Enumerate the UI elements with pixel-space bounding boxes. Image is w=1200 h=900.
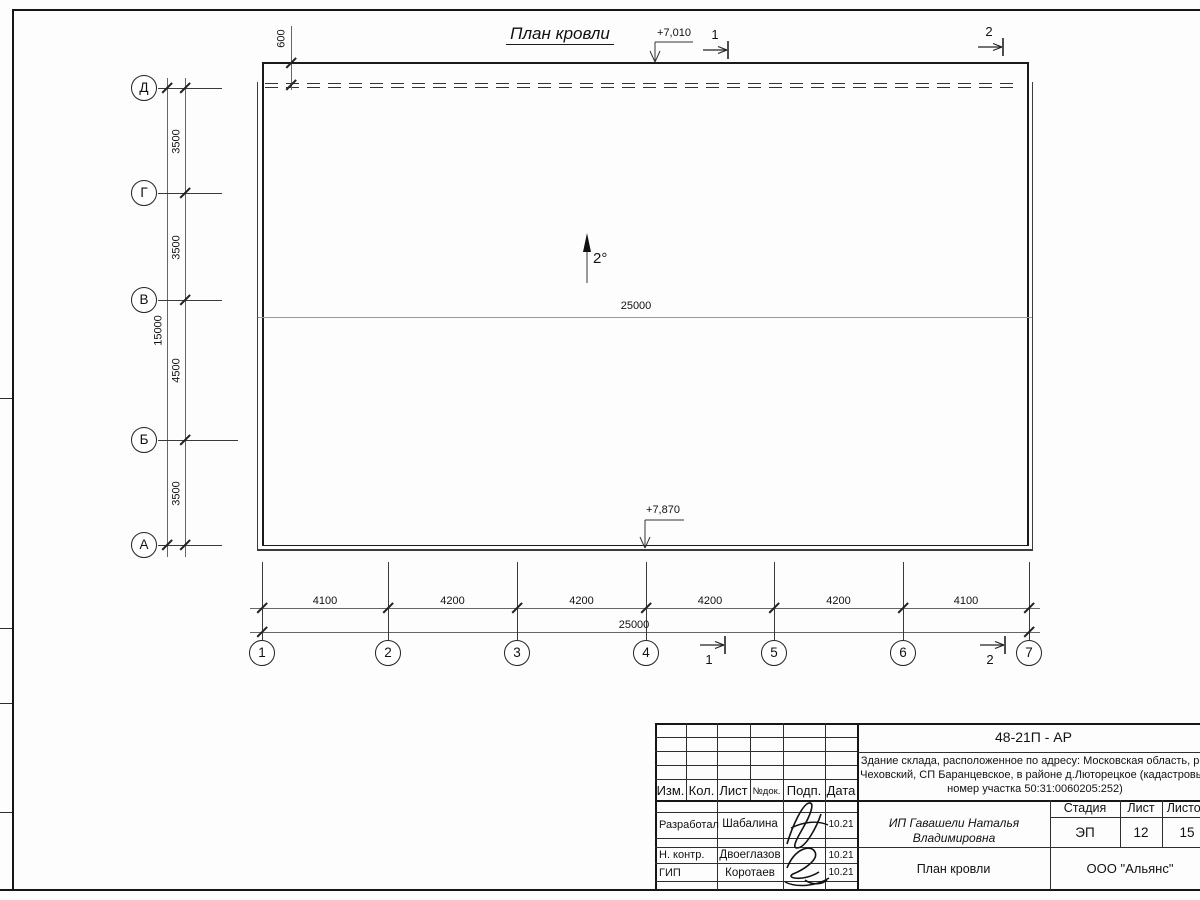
roof-inner-right xyxy=(1027,62,1029,546)
axis-bubble-7: 7 xyxy=(1016,640,1042,666)
signer-role: Разработал xyxy=(659,818,717,832)
frame-top-line xyxy=(12,9,1200,11)
elevation-bottom-label: +7,870 xyxy=(642,504,684,517)
rev-header-list: Лист xyxy=(717,782,750,799)
axis-bubble-3: 3 xyxy=(504,640,530,666)
dim-label-vertical: 3500 xyxy=(171,471,184,515)
sheet-number: 12 xyxy=(1120,824,1162,841)
elevation-leader-bottom-icon xyxy=(635,516,690,552)
dim-line-left-segments xyxy=(185,78,186,557)
axis-bubble-1: 1 xyxy=(249,640,275,666)
stage-value: ЭП xyxy=(1050,824,1120,841)
dim-label-horizontal: 4200 xyxy=(557,595,607,608)
axis-line-Б xyxy=(158,440,238,441)
axis-line-6 xyxy=(903,562,904,640)
dim-label-horizontal: 4100 xyxy=(941,595,991,608)
titleblock-line xyxy=(717,723,718,890)
roof-inner-left xyxy=(262,62,264,546)
signer-name: Шабалина xyxy=(717,817,783,832)
rev-header-ndok: №док. xyxy=(750,785,783,798)
dim-label-vertical: 3500 xyxy=(171,119,184,163)
dim-label-horizontal: 4200 xyxy=(814,595,864,608)
axis-bubble-Д: Д xyxy=(131,75,157,101)
dim-label-vertical: 3500 xyxy=(171,225,184,269)
titleblock-line xyxy=(655,751,857,752)
section-1-arrow-top-icon xyxy=(701,36,737,62)
client-name: ИП Гавашели Наталья Владимировна xyxy=(860,816,1048,846)
dim-label-horizontal: 4200 xyxy=(428,595,478,608)
dim-label-horizontal-total: 25000 xyxy=(609,619,659,632)
signer-role: ГИП xyxy=(659,866,717,880)
frame-bottom-line xyxy=(0,889,1200,891)
object-description-line2: Чеховский, СП Баранцевское, в районе д.Л… xyxy=(840,768,1200,782)
hidden-wall-line-1 xyxy=(265,83,1021,84)
titleblock-line xyxy=(655,765,857,766)
axis-bubble-А: А xyxy=(131,532,157,558)
axis-bubble-5: 5 xyxy=(761,640,787,666)
dim-label-vertical-total: 15000 xyxy=(153,306,166,356)
rev-header-kol: Кол. xyxy=(686,782,717,799)
section-2-arrow-top-icon xyxy=(976,33,1012,59)
axis-line-Г xyxy=(158,193,222,194)
titleblock-line xyxy=(857,752,1200,753)
axis-line-2 xyxy=(388,562,389,640)
axis-line-3 xyxy=(517,562,518,640)
parapet-dim-label: 600 xyxy=(276,19,289,59)
sheets-header: Листов xyxy=(1162,801,1200,816)
axis-bubble-4: 4 xyxy=(633,640,659,666)
margin-box-line xyxy=(0,812,12,813)
document-code: 48-21П - АР xyxy=(857,729,1200,746)
stage-header: Стадия xyxy=(1050,801,1120,816)
axis-bubble-2: 2 xyxy=(375,640,401,666)
roof-valley-line xyxy=(258,317,1032,318)
dim-label-horizontal: 4100 xyxy=(300,595,350,608)
frame-left-line xyxy=(12,9,14,890)
margin-box-line xyxy=(0,628,12,629)
dim-label-vertical: 4500 xyxy=(171,349,184,393)
axis-bubble-6: 6 xyxy=(890,640,916,666)
sheet-header: Лист xyxy=(1120,801,1162,816)
parapet-outer-right xyxy=(1032,82,1033,550)
dim-line-left-total xyxy=(167,78,168,557)
signature-control-gip xyxy=(779,840,833,890)
elevation-top-label: +7,010 xyxy=(653,27,695,40)
ridge-length-label: 25000 xyxy=(611,300,661,313)
margin-box-line xyxy=(0,398,12,399)
page-title: План кровли xyxy=(470,24,650,44)
parapet-dim-line xyxy=(291,26,292,90)
axis-line-1 xyxy=(262,562,263,640)
titleblock-line xyxy=(655,779,857,780)
sheet-title: План кровли xyxy=(857,861,1050,877)
object-description-line3: номер участка 50:31:0060205:252) xyxy=(840,782,1200,796)
axis-bubble-Б: Б xyxy=(131,427,157,453)
margin-box-line xyxy=(0,703,12,704)
axis-line-5 xyxy=(774,562,775,640)
drawing-sheet: План кровли 25000 2° +7,010 +7,870 1 xyxy=(0,0,1200,900)
axis-bubble-Г: Г xyxy=(131,180,157,206)
axis-line-В xyxy=(158,300,222,301)
hidden-wall-line-2 xyxy=(265,87,1021,88)
titleblock-border xyxy=(655,723,657,890)
object-description-line1: Здание склада, расположенное по адресу: … xyxy=(840,754,1200,768)
sheets-total: 15 xyxy=(1162,824,1200,841)
company-name: ООО "Альянс" xyxy=(1050,861,1200,877)
section-1-label-bottom: 1 xyxy=(702,653,716,667)
titleblock-line xyxy=(655,737,857,738)
signer-name: Коротаев xyxy=(717,866,783,880)
signer-name: Двоеглазов xyxy=(717,848,783,862)
rev-header-podp: Подп. xyxy=(783,782,825,799)
slope-value-label: 2° xyxy=(593,250,607,268)
titleblock-line xyxy=(1050,817,1200,818)
page-title-text: План кровли xyxy=(506,24,614,45)
dim-label-horizontal: 4200 xyxy=(685,595,735,608)
rev-header-izm: Изм. xyxy=(655,782,686,799)
signer-role: Н. контр. xyxy=(659,848,717,862)
titleblock-border xyxy=(655,723,1200,725)
section-2-label-bottom: 2 xyxy=(983,653,997,667)
axis-line-7 xyxy=(1029,562,1030,640)
elevation-leader-top-icon xyxy=(645,38,700,66)
